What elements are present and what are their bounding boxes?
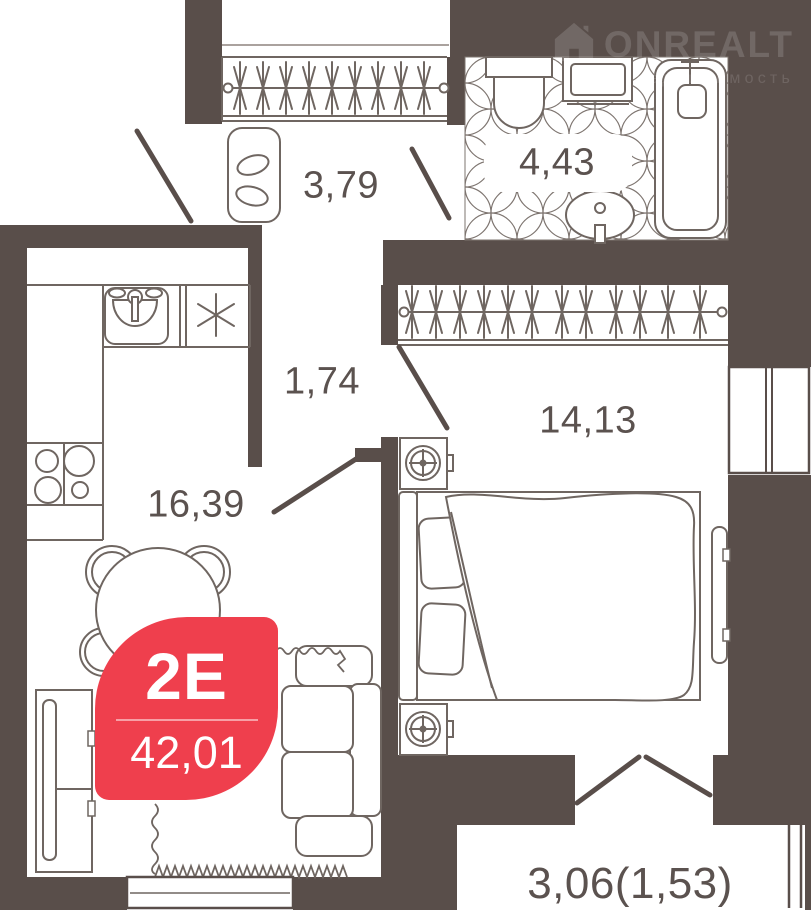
hallway-area-label: 3,79 xyxy=(303,165,379,208)
wall-kitchen-top xyxy=(0,225,262,248)
nightstand xyxy=(400,704,453,755)
wall-hall-bath xyxy=(447,57,465,125)
washing-machine xyxy=(563,57,632,104)
wall-top xyxy=(450,0,811,57)
living-window xyxy=(127,877,293,908)
stove-burners xyxy=(35,446,94,503)
wall-entry xyxy=(185,0,222,124)
hallway-hangers-icon xyxy=(234,62,430,114)
wall-bedroom-bottom-left xyxy=(398,755,575,825)
balcony-door-swing-right xyxy=(646,757,710,795)
toilet xyxy=(486,57,552,128)
wall-bottom-center xyxy=(293,877,398,910)
bathroom-tile-floor xyxy=(465,57,728,240)
fridge-cabinet xyxy=(36,690,95,872)
bedroom-window xyxy=(729,367,809,473)
bedroom-area-label: 14,13 xyxy=(539,400,637,443)
balcony-window xyxy=(789,825,801,908)
apartment-total-area: 42,01 xyxy=(130,730,243,775)
wall-balcony-left xyxy=(398,825,457,910)
corridor-area-label: 1,74 xyxy=(284,361,360,404)
bathroom-door-swing xyxy=(412,149,449,218)
living-door-swing xyxy=(274,459,356,512)
wall-right-upper xyxy=(728,57,811,367)
balcony-area-label: 3,06(1,53) xyxy=(527,859,733,909)
wall-living-door-stub xyxy=(355,448,398,462)
apartment-type: 2Е xyxy=(145,643,228,709)
kitchen-living-area-label: 16,39 xyxy=(147,484,245,527)
wall-right-lower xyxy=(728,475,811,755)
wall-bedroom-door-jamb xyxy=(381,285,398,345)
bedroom-hangers-icon xyxy=(406,286,706,338)
wall-living-bedroom xyxy=(381,437,398,910)
wall-bedroom-bottom-right xyxy=(713,755,811,825)
bathtub xyxy=(655,58,726,238)
bathroom-sink xyxy=(566,191,634,243)
badge-divider xyxy=(116,719,258,721)
wall-bath-bottom xyxy=(383,240,730,285)
hob-asterisk-icon xyxy=(198,294,234,336)
balcony-door-swing-left xyxy=(577,757,639,803)
entry-door-swing xyxy=(137,131,191,221)
bed xyxy=(399,492,700,701)
apartment-badge: 2Е 42,01 xyxy=(95,617,278,800)
wall-left xyxy=(0,225,27,910)
wall-balcony-right-edge xyxy=(805,825,811,910)
shoe-cabinet xyxy=(228,128,280,222)
floor-plan: 3,79 4,43 1,74 14,13 16,39 3,06(1,53) 2Е… xyxy=(0,0,811,910)
nightstand xyxy=(400,438,453,489)
bathroom-area-label: 4,43 xyxy=(519,142,595,185)
wall-bottom-left xyxy=(0,877,127,910)
bedroom-door-swing xyxy=(399,347,447,428)
wall-corridor-kitchen xyxy=(248,225,262,467)
sofa xyxy=(282,646,381,856)
hallway-wardrobe xyxy=(222,57,449,121)
kitchen-sink xyxy=(105,288,168,344)
bedroom-wardrobe xyxy=(398,308,728,346)
